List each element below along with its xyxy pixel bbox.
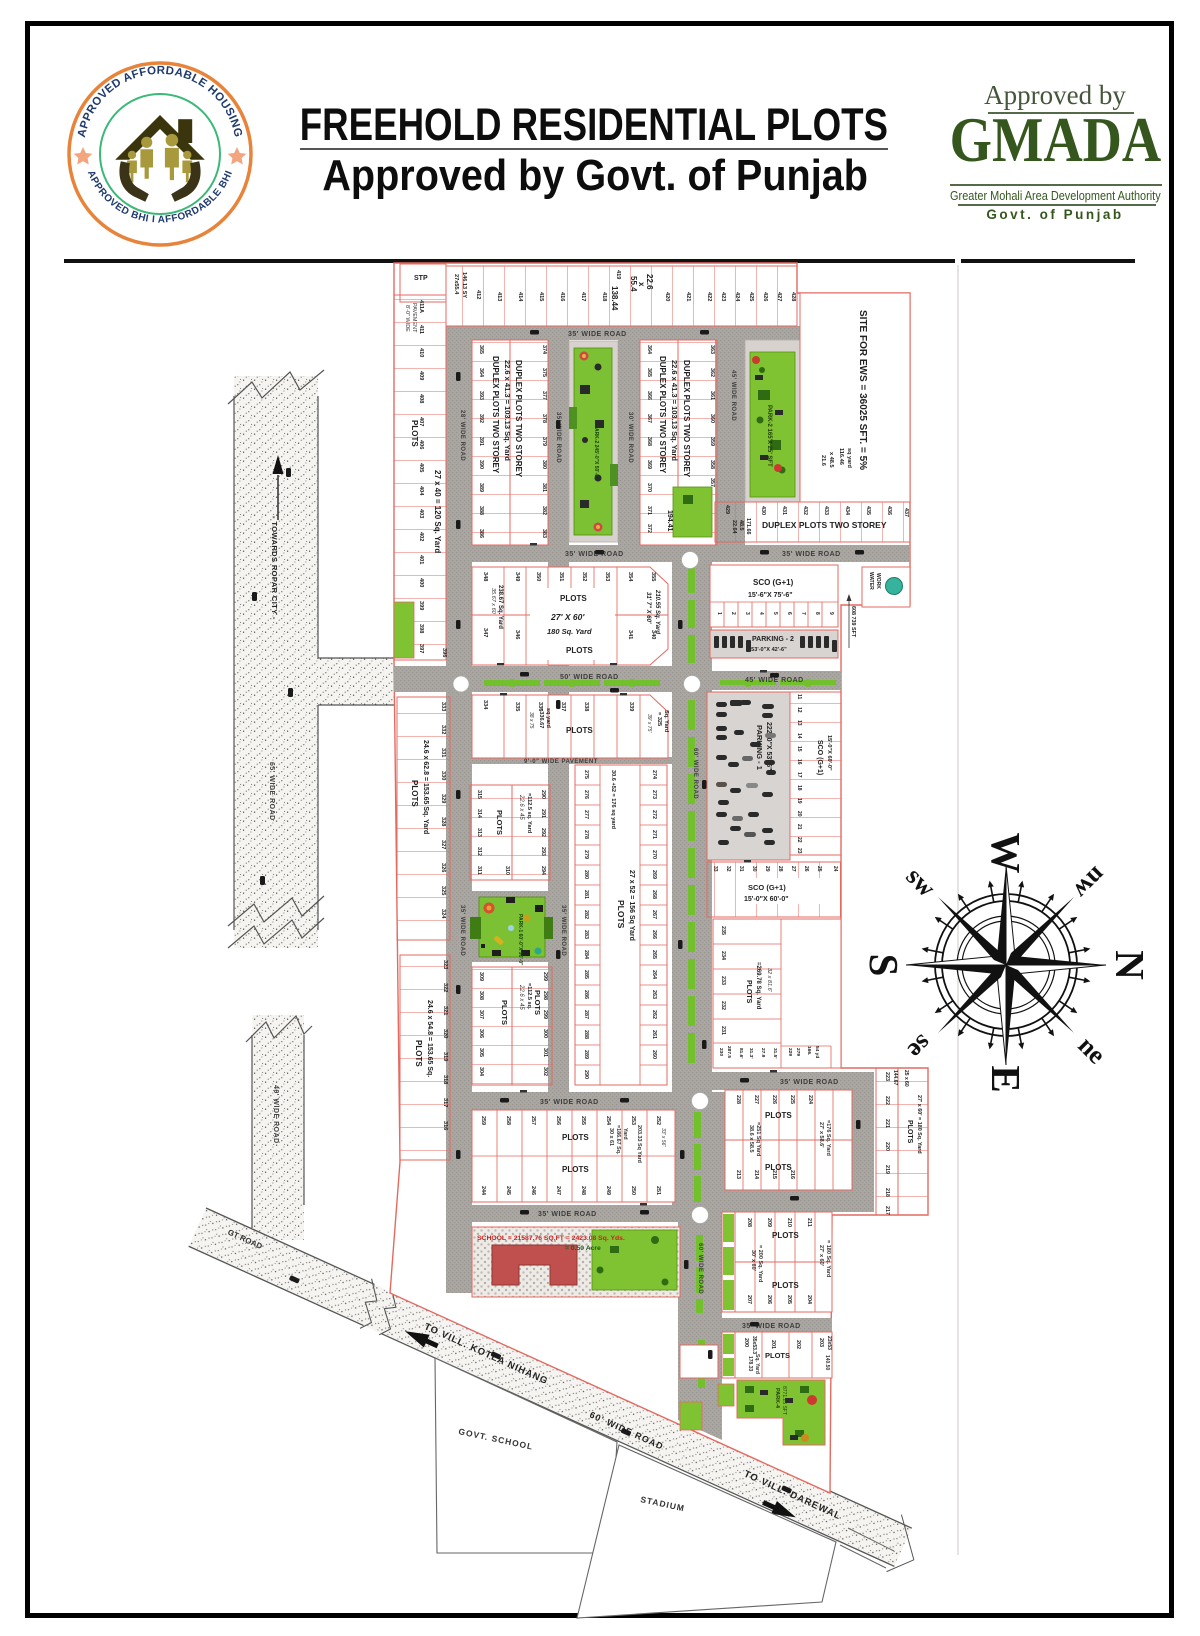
svg-text:341: 341 [627,630,633,639]
svg-text:22.6 x 41.3 = 103.13 Sq. Yard: 22.6 x 41.3 = 103.13 Sq. Yard [503,360,512,461]
svg-text:223: 223 [884,1072,890,1081]
svg-text:138.44: 138.44 [610,286,619,311]
svg-text:220: 220 [884,1142,890,1151]
svg-text:ne: ne [1073,1031,1112,1070]
svg-text:15: 15 [796,746,802,752]
svg-text:22.64: 22.64 [731,520,737,534]
svg-text:423: 423 [720,292,726,301]
svg-text:=269.78 Sq. Yard: =269.78 Sq. Yard [755,962,761,1010]
svg-text:STP: STP [414,275,428,282]
svg-text:208: 208 [746,1218,752,1227]
svg-text:15'-0"X 60'-0": 15'-0"X 60'-0" [826,735,832,771]
svg-text:279: 279 [795,1048,801,1056]
svg-text:PLOTS: PLOTS [745,980,752,1004]
svg-text:55.4: 55.4 [629,276,638,292]
svg-text:247: 247 [555,1186,561,1195]
svg-text:228: 228 [735,1095,741,1104]
svg-text:14: 14 [796,733,802,739]
svg-text:PARK-1 60'-0"X 90'-0": PARK-1 60'-0"X 90'-0" [517,914,523,966]
svg-text:278: 278 [583,830,589,839]
svg-text:=112.5 sq. Yard: =112.5 sq. Yard [526,793,532,834]
svg-text:171.66: 171.66 [745,518,751,535]
svg-text:203: 203 [818,1338,824,1347]
svg-text:39' x 75': 39' x 75' [646,714,652,733]
svg-text:=186.67 Sq.: =186.67 Sq. [615,1125,621,1155]
svg-text:324: 324 [440,909,446,919]
svg-text:Yard: Yard [622,1128,628,1140]
svg-text:277: 277 [583,810,589,819]
svg-text:22.6: 22.6 [645,274,654,290]
svg-text:35' WIDE ROAD: 35' WIDE ROAD [568,331,627,338]
svg-text:9'-0" WIDE PAVEMENT: 9'-0" WIDE PAVEMENT [524,759,598,765]
svg-text:204: 204 [806,1295,812,1304]
svg-text:328: 328 [440,817,446,826]
svg-text:203.33 Sq Yard: 203.33 Sq Yard [636,1125,642,1163]
svg-text:364: 364 [478,368,484,377]
svg-text:30.6 +52 = 176 sq yard: 30.6 +52 = 176 sq yard [610,770,616,830]
svg-text:308: 308 [478,991,484,1000]
svg-text:15'-0"X 60'-0": 15'-0"X 60'-0" [744,896,789,903]
svg-text:se: se [902,1029,938,1065]
svg-text:355: 355 [650,572,656,581]
svg-text:299: 299 [542,972,548,981]
svg-text:23: 23 [796,848,802,854]
svg-text:268: 268 [651,890,657,899]
svg-text:35' WIDE ROAD: 35' WIDE ROAD [538,1211,597,1218]
svg-text:27 x 40 = 120 Sq. Yard: 27 x 40 = 120 Sq. Yard [433,470,442,553]
svg-text:235: 235 [720,926,726,935]
svg-text:403: 403 [418,509,424,518]
svg-text:54 yd: 54 yd [814,1046,820,1058]
svg-text:140.50: 140.50 [824,1355,830,1371]
svg-text:= 180 Sq. Yard: = 180 Sq. Yard [825,1240,831,1277]
svg-text:284: 284 [583,950,589,959]
svg-text:264: 264 [651,970,657,979]
svg-text:= 325: = 325 [656,712,662,726]
svg-text:229: 229 [787,1048,793,1056]
svg-text:358: 358 [709,460,715,469]
svg-text:322: 322 [442,983,448,992]
svg-text:PARK-4: PARK-4 [774,1388,780,1409]
svg-text:266: 266 [651,930,657,939]
svg-text:12: 12 [796,707,802,713]
svg-text:408: 408 [418,394,424,403]
svg-text:21.6: 21.6 [820,455,826,466]
svg-text:DUPLEX PLOTS TWO STOREY: DUPLEX PLOTS TWO STOREY [491,356,500,474]
svg-text:421: 421 [685,292,691,301]
svg-text:27' x 60' = 180 Sq. Yard: 27' x 60' = 180 Sq. Yard [916,1095,922,1154]
svg-text:234: 234 [720,951,726,960]
svg-text:221: 221 [884,1119,890,1128]
svg-text:35' WIDE ROAD: 35' WIDE ROAD [540,1099,599,1106]
svg-text:PLOTS: PLOTS [562,1133,589,1142]
svg-text:38 x 75: 38 x 75 [528,712,534,729]
svg-text:x: x [637,282,646,287]
svg-text:347: 347 [482,628,488,637]
svg-text:251: 251 [655,1186,661,1195]
svg-text:178.33: 178.33 [747,1356,753,1372]
svg-text:400: 400 [418,578,424,587]
svg-text:22: 22 [796,837,802,843]
svg-text:401: 401 [418,555,424,564]
svg-text:416: 416 [559,292,565,301]
svg-text:364: 364 [646,345,652,354]
svg-text:388: 388 [478,506,484,515]
svg-text:312: 312 [476,847,482,856]
svg-text:48.5: 48.5 [738,520,744,531]
svg-text:224: 224 [807,1095,813,1104]
svg-text:17: 17 [796,772,802,778]
svg-text:393: 393 [478,391,484,400]
svg-text:30 x 61: 30 x 61 [608,1128,614,1146]
svg-text:22.6 x 45: 22.6 x 45 [518,984,524,1010]
svg-text:PARK-2 245'-0"X 50'-0": PARK-2 245'-0"X 50'-0" [593,425,599,480]
svg-text:420: 420 [664,292,670,301]
svg-text:22.6 x 45: 22.6 x 45 [518,794,524,820]
svg-text:424: 424 [734,292,740,302]
svg-text:SITE FOR EWS = 36025 SFT. = 5%: SITE FOR EWS = 36025 SFT. = 5% [857,310,868,470]
svg-text:20: 20 [796,811,802,817]
svg-text:PLOTS: PLOTS [560,594,587,603]
svg-text:273: 273 [651,790,657,799]
svg-text:367: 367 [646,414,652,423]
svg-text:27' x 58.6': 27' x 58.6' [818,1122,824,1148]
svg-text:332: 332 [440,725,446,734]
svg-text:317: 317 [442,1098,448,1107]
svg-text:30' WIDE ROAD: 30' WIDE ROAD [627,412,633,463]
svg-text:201: 201 [770,1340,776,1349]
svg-text:166.: 166. [806,1046,812,1055]
svg-text:30' x 60': 30' x 60' [750,1250,756,1272]
svg-text:249: 249 [605,1186,611,1195]
svg-text:35' WIDE ROAD: 35' WIDE ROAD [565,551,624,558]
svg-text:311: 311 [476,866,482,875]
svg-text:PLOTS: PLOTS [410,420,419,447]
svg-text:S: S [861,954,907,977]
svg-text:= 0.50 Acre: = 0.50 Acre [565,1245,601,1252]
svg-text:35' WIDE ROAD: 35' WIDE ROAD [560,905,566,956]
svg-text:282: 282 [583,910,589,919]
svg-text:431: 431 [781,506,787,515]
svg-text:256: 256 [555,1116,561,1125]
svg-text:419: 419 [615,270,621,279]
svg-text:25: 25 [816,866,822,872]
svg-text:sw: sw [901,862,942,903]
svg-text:116.46: 116.46 [838,448,844,465]
svg-text:60' WIDE ROAD: 60' WIDE ROAD [697,1243,703,1294]
svg-text:428: 428 [790,292,796,301]
svg-text:38.6 x 58.5: 38.6 x 58.5 [748,1125,754,1153]
svg-text:50' WIDE ROAD: 50' WIDE ROAD [560,674,619,681]
svg-text:370: 370 [646,483,652,492]
svg-text:430: 430 [760,506,766,515]
svg-text:227: 227 [753,1095,759,1104]
svg-text:276: 276 [583,790,589,799]
svg-text:334: 334 [482,700,488,710]
svg-text:WORK: WORK [875,573,881,589]
svg-text:23x53: 23x53 [826,1336,832,1350]
svg-text:35' WIDE ROAD: 35' WIDE ROAD [780,1079,839,1086]
svg-text:PARK-2 165'X 25' SFT: PARK-2 165'X 25' SFT [766,405,772,467]
svg-text:313: 313 [476,828,482,837]
svg-text:382: 382 [541,506,547,515]
svg-text:233: 233 [720,976,726,985]
svg-text:290: 290 [540,790,546,799]
svg-text:365: 365 [478,345,484,354]
svg-text:318: 318 [442,1075,448,1084]
svg-text:32: 32 [725,866,731,872]
svg-text:315: 315 [476,790,482,799]
svg-text:209: 209 [766,1218,772,1227]
svg-text:245: 245 [505,1186,511,1195]
svg-text:412: 412 [475,290,481,299]
svg-text:35x53.3: 35x53.3 [751,1336,757,1354]
svg-text:287.5: 287.5 [726,1046,732,1058]
svg-text:33: 33 [712,866,718,872]
svg-text:374: 374 [541,345,547,354]
svg-text:PLOTS: PLOTS [616,900,626,929]
svg-text:200: 200 [743,1338,749,1347]
svg-text:Sq. Yard: Sq. Yard [663,710,669,733]
svg-text:250: 250 [630,1186,636,1195]
svg-text:405: 405 [418,463,424,472]
svg-text:433: 433 [823,506,829,515]
svg-text:316: 316 [442,1121,448,1130]
svg-text:218: 218 [884,1188,890,1197]
svg-text:16: 16 [796,759,802,765]
svg-text:W: W [983,833,1029,874]
svg-text:330: 330 [440,771,446,780]
svg-text:435: 435 [865,506,871,515]
svg-text:383: 383 [541,529,547,538]
svg-text:210.55 Sq. Yard: 210.55 Sq. Yard [654,589,660,634]
svg-text:349: 349 [514,572,520,581]
svg-text:265: 265 [651,950,657,959]
svg-text:27x55.4: 27x55.4 [453,274,459,295]
svg-text:409: 409 [418,371,424,380]
svg-text:PLOTS: PLOTS [533,990,542,1015]
svg-text:PARKING - 1: PARKING - 1 [755,725,764,770]
svg-text:PLOTS: PLOTS [410,780,419,807]
svg-text:263: 263 [651,990,657,999]
svg-text:8771.25 SFT: 8771.25 SFT [781,1386,787,1415]
svg-text:28: 28 [777,866,783,872]
svg-text:371: 371 [646,506,652,515]
svg-text:287: 287 [583,1010,589,1019]
svg-text:DUPLEX PLOTS TWO STOREY: DUPLEX PLOTS TWO STOREY [514,360,523,478]
svg-text:33' x 56': 33' x 56' [660,1128,666,1147]
svg-text:279: 279 [583,850,589,859]
svg-text:81.6': 81.6' [738,1048,744,1058]
svg-text:288: 288 [583,1030,589,1039]
svg-text:270: 270 [651,850,657,859]
svg-text:19: 19 [796,798,802,804]
svg-text:375: 375 [541,368,547,377]
svg-text:386: 386 [478,529,484,538]
svg-text:259: 259 [480,1116,486,1125]
svg-text:379: 379 [541,437,547,446]
svg-text:293: 293 [540,847,546,856]
svg-text:372: 372 [646,524,652,533]
svg-text:422: 422 [706,292,712,301]
svg-text:231: 231 [720,1026,726,1035]
svg-text:365: 365 [646,368,652,377]
svg-text:31.3': 31.3' [748,1048,754,1058]
svg-text:6: 6 [786,612,792,615]
svg-text:280: 280 [583,870,589,879]
svg-text:397: 397 [418,644,424,653]
svg-text:253: 253 [630,1116,636,1125]
svg-text:378: 378 [541,414,547,423]
svg-text:338: 338 [583,702,589,711]
svg-text:226: 226 [771,1095,777,1104]
svg-text:Sq. Yard: Sq. Yard [754,1354,760,1374]
svg-text:N: N [1107,950,1153,980]
svg-text:410: 410 [418,348,424,357]
svg-text:PLOTS: PLOTS [772,1231,799,1240]
svg-text:353: 353 [604,572,610,581]
svg-text:32 x 81.6': 32 x 81.6' [766,968,772,993]
svg-text:15'-6"X 75'-6": 15'-6"X 75'-6" [748,592,793,599]
svg-text:402: 402 [418,532,424,541]
svg-text:398: 398 [418,624,424,633]
svg-text:432: 432 [802,506,808,515]
svg-text:SCO (G+1): SCO (G+1) [753,578,794,587]
svg-text:238.67 Sq. Yard: 238.67 Sq. Yard [497,585,503,629]
svg-text:389: 389 [478,483,484,492]
svg-text:437: 437 [903,508,909,517]
svg-text:206: 206 [766,1295,772,1304]
svg-text:E: E [983,1065,1029,1092]
svg-text:225: 225 [789,1095,795,1104]
svg-text:269: 269 [651,870,657,879]
svg-text:267: 267 [651,910,657,919]
svg-text:248: 248 [580,1186,586,1195]
svg-text:418: 418 [601,292,607,301]
svg-text:PARKING - 2: PARKING - 2 [752,636,794,643]
svg-text:205: 205 [786,1295,792,1304]
svg-text:180 Sq. Yard: 180 Sq. Yard [547,627,592,636]
svg-text:9: 9 [828,612,834,615]
svg-text:307: 307 [478,1010,484,1019]
svg-text:368: 368 [646,437,652,446]
svg-text:325: 325 [440,886,446,895]
svg-text:18: 18 [796,785,802,791]
svg-text:411A: 411A [418,300,424,313]
svg-text:WATER: WATER [868,572,874,590]
svg-text:25 x 60: 25 x 60 [903,1070,909,1087]
svg-text:244: 244 [480,1186,486,1195]
svg-text:283: 283 [583,930,589,939]
svg-text:326: 326 [440,863,446,872]
svg-text:289: 289 [583,1050,589,1059]
svg-text:309: 309 [478,972,484,981]
svg-text:366: 366 [646,391,652,400]
svg-text:411: 411 [418,325,424,334]
svg-text:217: 217 [884,1206,890,1215]
svg-text:4: 4 [758,612,764,615]
svg-text:26: 26 [803,866,809,872]
svg-text:246: 246 [530,1186,536,1195]
svg-text:nw: nw [1068,861,1112,905]
svg-text:357: 357 [709,478,715,487]
svg-text:=112.5 sq.: =112.5 sq. [526,983,532,1010]
svg-text:290: 290 [583,1070,589,1079]
svg-text:413: 413 [496,292,502,301]
svg-text:362: 362 [709,368,715,377]
svg-text:202: 202 [795,1340,801,1349]
svg-text:285: 285 [583,970,589,979]
svg-text:377: 377 [541,391,547,400]
svg-text:359: 359 [709,437,715,446]
svg-text:PLOTS: PLOTS [500,1000,509,1025]
svg-text:214: 214 [753,1170,759,1179]
svg-text:PLOTS: PLOTS [566,646,593,655]
svg-text:31.5': 31.5' [772,1048,778,1058]
svg-text:144.67: 144.67 [892,1070,898,1086]
svg-text:40' WIDE ROAD: 40' WIDE ROAD [272,1085,279,1144]
svg-text:194.41: 194.41 [666,510,673,532]
svg-text:426: 426 [762,292,768,301]
svg-text:PLOTS: PLOTS [495,810,504,835]
svg-text:337: 337 [560,702,566,711]
svg-text:271: 271 [651,830,657,839]
svg-text:381: 381 [541,483,547,492]
svg-text:7: 7 [800,612,806,615]
svg-text:SCO (G+1): SCO (G+1) [748,883,786,892]
svg-text:314: 314 [476,809,482,818]
svg-text:369: 369 [646,460,652,469]
svg-text:45' WIDE ROAD: 45' WIDE ROAD [745,677,804,684]
svg-text:351: 351 [558,572,564,581]
svg-text:27' X 60': 27' X 60' [550,612,585,622]
svg-text:255: 255 [580,1116,586,1125]
svg-text:294: 294 [540,866,546,875]
svg-text:- TOWARDS ROPAR CITY -: - TOWARDS ROPAR CITY - [270,516,279,620]
svg-text:SCHOOL = 21587.76 SQ.FT = 2423: SCHOOL = 21587.76 SQ.FT = 2423.08 Sq. Yd… [477,1235,625,1242]
svg-text:27: 27 [790,866,796,872]
svg-text:434: 434 [844,506,850,515]
svg-text:27.9: 27.9 [760,1048,766,1058]
svg-text:35.67 x 60: 35.67 x 60 [490,588,496,615]
svg-text:286: 286 [583,990,589,999]
svg-text:321: 321 [442,1006,448,1015]
svg-text:219: 219 [884,1165,890,1174]
svg-text:3: 3 [744,612,750,615]
svg-text:436: 436 [886,506,892,515]
svg-text:272: 272 [651,810,657,819]
svg-text:360: 360 [709,414,715,423]
svg-text:414: 414 [517,292,523,302]
svg-text:2: 2 [730,612,736,615]
svg-text:281: 281 [583,890,589,899]
svg-text:319: 319 [442,1052,448,1061]
svg-text:310: 310 [504,866,510,875]
svg-text:11: 11 [796,694,802,700]
svg-text:404: 404 [418,486,424,496]
svg-text:339: 339 [628,702,634,711]
svg-text:390: 390 [478,460,484,469]
svg-text:sq yard: sq yard [846,448,852,468]
svg-text:=336.67: =336.67 [538,708,544,728]
svg-text:PLOTS: PLOTS [765,1111,792,1120]
svg-text:305: 305 [478,1048,484,1057]
svg-text:391: 391 [478,437,484,446]
svg-text:258: 258 [505,1116,511,1125]
svg-text:261: 261 [651,1030,657,1039]
svg-text:27 x 52 = 156 Sq Yard: 27 x 52 = 156 Sq Yard [628,870,635,941]
svg-text:31: 31 [738,866,744,872]
